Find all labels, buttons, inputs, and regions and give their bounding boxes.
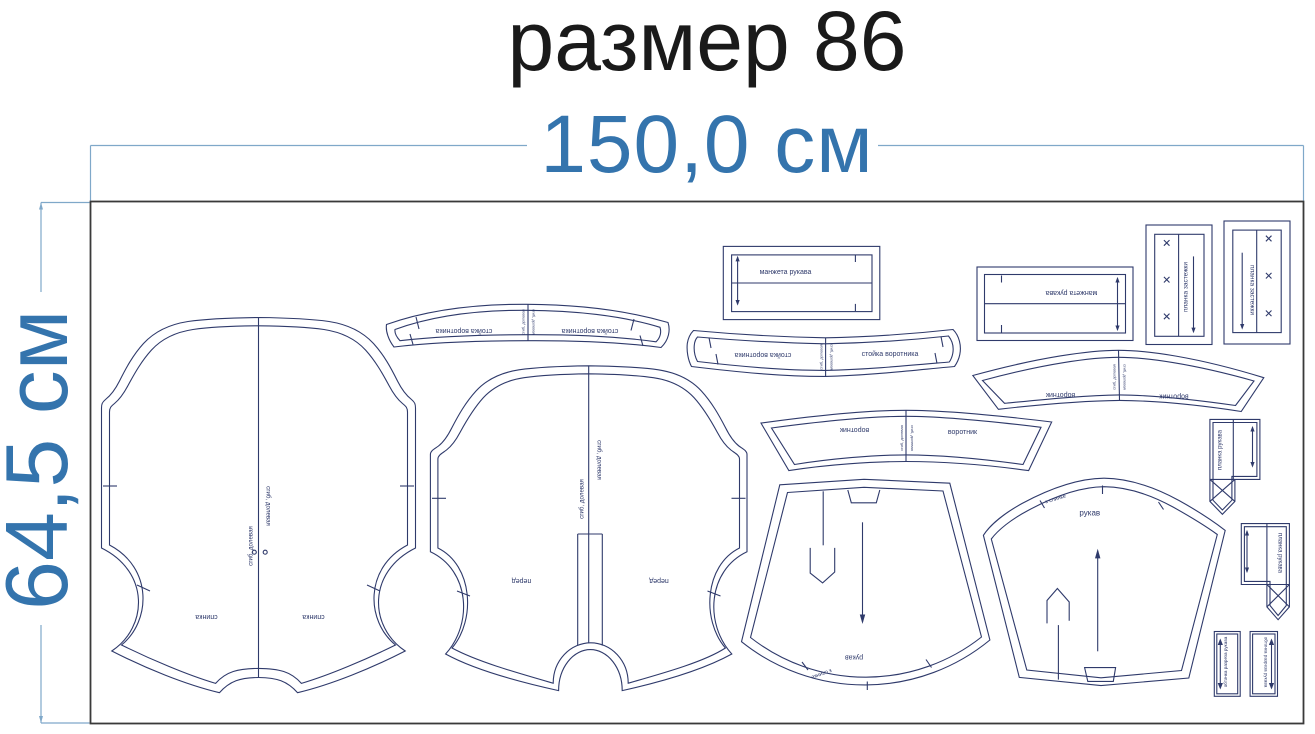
svg-text:сгиб, долевая: сгиб, долевая	[819, 344, 824, 370]
svg-text:сгиб, долевая: сгиб, долевая	[521, 309, 526, 335]
svg-text:обтачка разреза рукава: обтачка разреза рукава	[1264, 637, 1269, 688]
svg-text:сгиб, долевая: сгиб, долевая	[830, 344, 835, 370]
svg-text:спинка: спинка	[302, 613, 324, 620]
svg-text:воротник: воротник	[839, 426, 869, 433]
svg-text:спинка: спинка	[195, 613, 217, 620]
svg-text:воротник: воротник	[948, 429, 978, 436]
svg-text:воротник: воротник	[1158, 393, 1188, 400]
svg-text:сгиб, долевая: сгиб, долевая	[579, 479, 586, 519]
svg-text:стойка воротника: стойка воротника	[735, 351, 792, 359]
svg-text:сгиб, долевая: сгиб, долевая	[910, 425, 915, 451]
svg-text:сгиб, долевая: сгиб, долевая	[248, 526, 255, 566]
svg-text:рукав: рукав	[1079, 509, 1100, 518]
svg-text:рукав: рукав	[845, 654, 863, 661]
svg-text:планка рукава: планка рукава	[1277, 533, 1283, 574]
svg-text:сгиб, долевая: сгиб, долевая	[1123, 364, 1128, 390]
svg-text:сгиб, долевая: сгиб, долевая	[532, 309, 537, 335]
svg-text:манжета рукава: манжета рукава	[1045, 289, 1097, 296]
svg-text:150,0 см: 150,0 см	[540, 99, 873, 190]
svg-text:стойка воротника: стойка воротника	[436, 327, 493, 335]
svg-text:сгиб, долевая: сгиб, долевая	[265, 486, 272, 526]
svg-text:манжета рукава: манжета рукава	[760, 269, 812, 276]
svg-text:планка застежки: планка застежки	[1183, 262, 1190, 312]
svg-text:сгиб, долевая: сгиб, долевая	[596, 440, 603, 480]
svg-text:размер 86: размер 86	[508, 0, 907, 88]
svg-text:стойка воротника: стойка воротника	[862, 350, 919, 358]
svg-text:сгиб, долевая: сгиб, долевая	[1112, 364, 1117, 390]
svg-text:планка рукава: планка рукава	[1218, 429, 1224, 470]
svg-text:перед: перед	[649, 577, 668, 584]
svg-text:стойка воротника: стойка воротника	[562, 327, 619, 335]
svg-text:обтачка разреза рукава: обтачка разреза рукава	[1223, 636, 1228, 687]
svg-text:планка застежки: планка застежки	[1249, 265, 1256, 315]
svg-text:64,5 см: 64,5 см	[0, 310, 86, 610]
svg-text:воротник: воротник	[1045, 391, 1075, 398]
svg-text:сгиб, долевая: сгиб, долевая	[899, 425, 904, 451]
svg-text:перед: перед	[512, 577, 531, 584]
